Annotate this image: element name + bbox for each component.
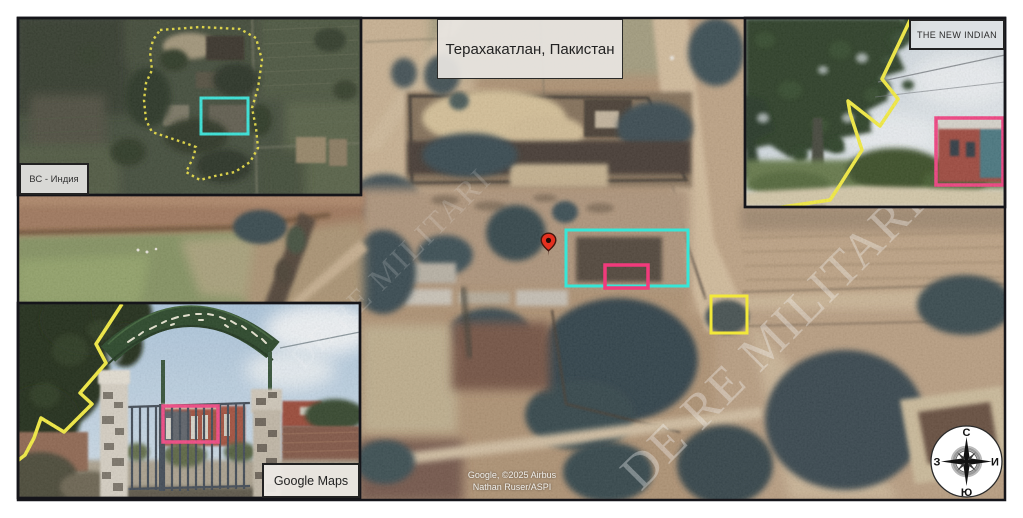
svg-text:И: И [991,457,999,469]
svg-text:З: З [934,457,941,469]
svg-text:Ю: Ю [961,487,972,499]
svg-text:С: С [963,427,971,439]
